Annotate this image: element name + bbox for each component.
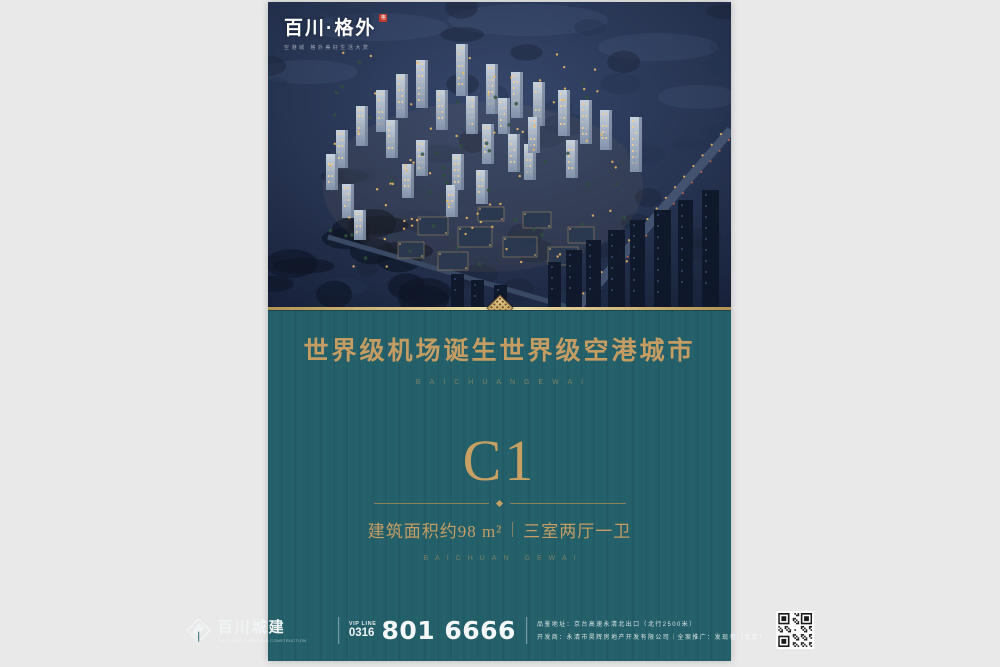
vip-line-label: VIP LINE [349,621,377,627]
company-logo: 百川城建 BAICHUAN CHENGJIAN CONSTRUCTION [185,616,328,644]
divider-line-left [374,503,490,504]
company-sub: BAICHUAN CHENGJIAN CONSTRUCTION [218,639,306,644]
brand-tagline: 空港城 格外美好生活大赏 [284,44,387,51]
vip-line: VIP LINE 0316 801 6666 [349,616,516,645]
unit-name: C1 [268,432,731,490]
brand-seal-icon: 格 [379,14,387,22]
headline-title: 世界级机场诞生世界级空港城市 [268,331,731,367]
address-line: 品鉴地址：京台高速永清北出口（北行2500米） [537,619,766,628]
brand-logo-text: 百川·格外 [284,13,376,40]
spec-separator [512,522,513,537]
brand-logo: 百川·格外 格 空港城 格外美好生活大赏 [284,13,387,51]
unit-divider [374,501,626,506]
headline-subtitle: BAICHUANGEWAI [268,379,731,386]
poster: 百川·格外 格 空港城 格外美好生活大赏 世界级机场诞生世界级空港城市 BAIC… [268,2,731,661]
qr-code [776,611,814,649]
footer-info: 品鉴地址：京台高速永清北出口（北行2500米） 开发商：永清市昊辉房地产开发有限… [537,619,766,641]
unit-spec: 建筑面积约98 m² 三室两厅一卫 [268,517,731,542]
small-diamond-icon [496,500,503,507]
unit-area: 建筑面积约98 m² [368,517,503,542]
company-logo-icon [185,617,212,644]
hero-image: 百川·格外 格 空港城 格外美好生活大赏 [268,2,731,307]
footer: 百川城建 BAICHUAN CHENGJIAN CONSTRUCTION VIP… [185,611,815,649]
unit-layout: 三室两厅一卫 [523,517,631,542]
unit-caption: BAICHUAN GEWAI [268,555,731,562]
company-name: 百川城建 [218,616,328,637]
developer-line: 开发商：永清市昊辉房地产开发有限公司｜全案推广：发现者（北京） [537,632,766,641]
page-background: 百川·格外 格 空港城 格外美好生活大赏 世界级机场诞生世界级空港城市 BAIC… [0,0,1000,667]
content-section: 世界级机场诞生世界级空港城市 BAICHUANGEWAI C1 建筑面积约98 … [268,310,731,661]
footer-divider [338,617,339,644]
footer-divider [526,617,527,644]
divider-line-right [510,503,626,504]
vip-area-code: 0316 [349,627,377,640]
phone-number: 801 6666 [381,616,515,645]
